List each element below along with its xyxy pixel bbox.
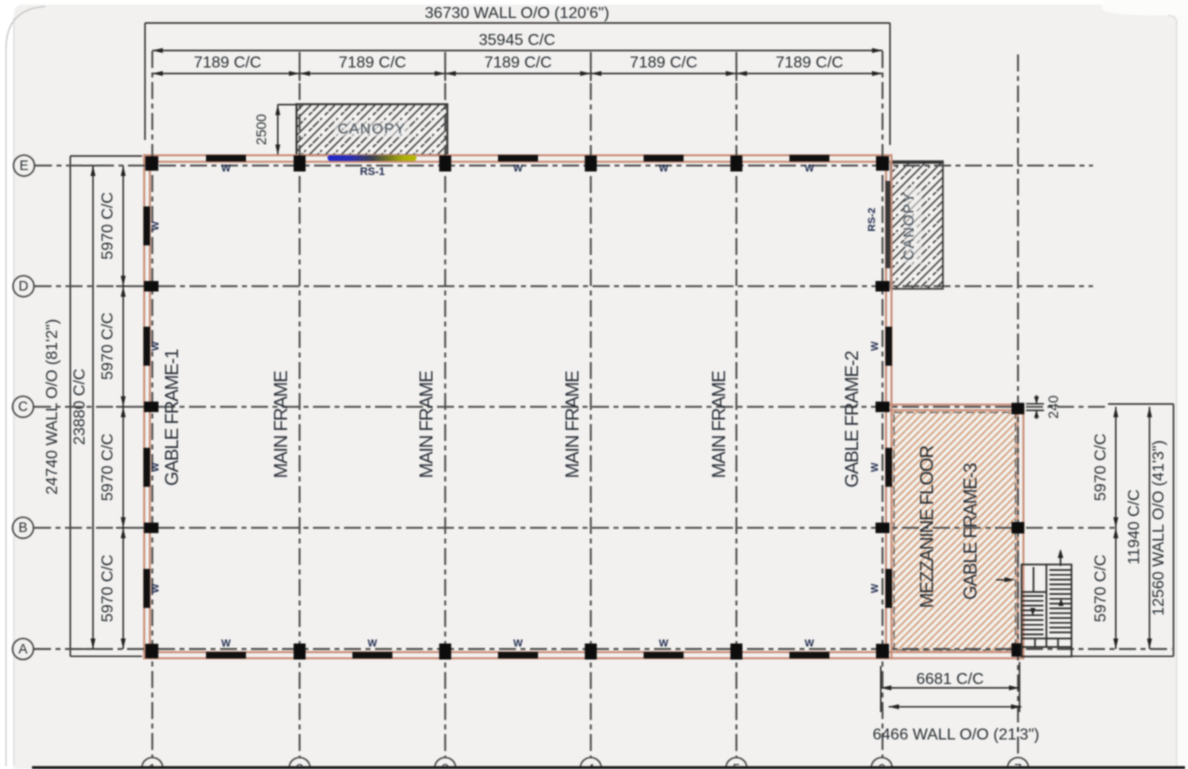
svg-text:W: W xyxy=(659,164,669,175)
svg-text:240: 240 xyxy=(1045,395,1061,419)
svg-text:W: W xyxy=(151,221,162,231)
svg-text:5970 C/C: 5970 C/C xyxy=(100,312,117,380)
svg-text:W: W xyxy=(151,583,162,593)
svg-text:W: W xyxy=(221,164,231,175)
svg-text:7189 C/C: 7189 C/C xyxy=(484,55,552,72)
svg-text:6681 C/C: 6681 C/C xyxy=(916,671,984,688)
svg-text:W: W xyxy=(659,639,669,650)
svg-text:6466 WALL O/O (21'3"): 6466 WALL O/O (21'3") xyxy=(873,727,1040,744)
svg-text:5970 C/C: 5970 C/C xyxy=(100,434,117,502)
svg-text:GABLE FRAME-1: GABLE FRAME-1 xyxy=(161,349,182,486)
svg-text:W: W xyxy=(870,583,881,593)
svg-text:5970 C/C: 5970 C/C xyxy=(1093,434,1110,502)
svg-text:D: D xyxy=(19,279,29,294)
svg-text:2500: 2500 xyxy=(253,114,269,145)
svg-text:GABLE FRAME-2: GABLE FRAME-2 xyxy=(841,351,862,488)
svg-text:7189 C/C: 7189 C/C xyxy=(194,55,262,72)
svg-text:7189 C/C: 7189 C/C xyxy=(776,55,844,72)
svg-text:36730 WALL O/O (120'6"): 36730 WALL O/O (120'6") xyxy=(425,5,610,22)
svg-text:B: B xyxy=(18,520,27,535)
svg-text:MAIN FRAME: MAIN FRAME xyxy=(708,371,729,479)
svg-text:12560 WALL O/O (41'3"): 12560 WALL O/O (41'3") xyxy=(1151,440,1168,616)
svg-text:W: W xyxy=(513,164,523,175)
svg-text:MAIN FRAME: MAIN FRAME xyxy=(270,371,291,479)
svg-text:MAIN FRAME: MAIN FRAME xyxy=(561,371,582,479)
svg-text:A: A xyxy=(18,641,27,656)
svg-text:RS-1: RS-1 xyxy=(360,166,385,178)
svg-text:W: W xyxy=(151,462,162,472)
svg-text:7189 C/C: 7189 C/C xyxy=(339,55,407,72)
svg-text:7189 C/C: 7189 C/C xyxy=(630,55,698,72)
svg-text:RS-2: RS-2 xyxy=(866,207,878,231)
svg-text:GABLE FRAME-3: GABLE FRAME-3 xyxy=(960,463,981,600)
svg-text:MEZZANINE FLOOR: MEZZANINE FLOOR xyxy=(916,445,937,608)
svg-text:W: W xyxy=(870,341,881,351)
svg-text:C: C xyxy=(18,399,28,414)
svg-text:W: W xyxy=(805,639,815,650)
svg-text:5970 C/C: 5970 C/C xyxy=(100,555,117,623)
svg-text:CANOPY: CANOPY xyxy=(902,192,918,260)
svg-text:CANOPY: CANOPY xyxy=(338,122,406,138)
svg-text:W: W xyxy=(151,341,162,351)
svg-text:5970 C/C: 5970 C/C xyxy=(100,192,117,260)
svg-text:E: E xyxy=(19,158,28,173)
svg-text:11940 C/C: 11940 C/C xyxy=(1126,489,1143,564)
svg-text:W: W xyxy=(870,462,881,472)
svg-text:5970 C/C: 5970 C/C xyxy=(1093,555,1110,623)
svg-text:W: W xyxy=(221,639,231,650)
svg-text:W: W xyxy=(805,164,815,175)
svg-text:MAIN FRAME: MAIN FRAME xyxy=(416,371,437,479)
svg-text:W: W xyxy=(513,639,523,650)
svg-text:W: W xyxy=(368,639,378,650)
svg-text:35945 C/C: 35945 C/C xyxy=(479,32,556,49)
